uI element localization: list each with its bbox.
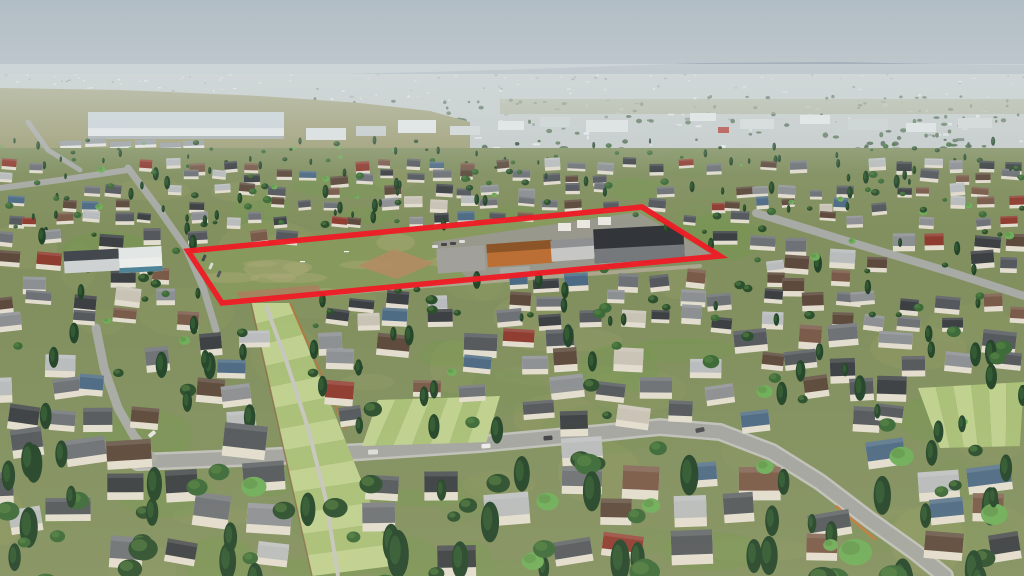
house (767, 272, 785, 287)
house (713, 231, 738, 245)
parked-car (459, 240, 465, 243)
school-building-main (593, 225, 685, 264)
school-building-wing (550, 237, 598, 261)
house (831, 270, 851, 287)
aerial-photo-canvas (0, 0, 1024, 576)
aerial-photo (0, 0, 1024, 576)
house (784, 254, 810, 274)
soccer-goal (300, 261, 305, 262)
house (0, 250, 20, 267)
house (36, 251, 62, 271)
house (143, 228, 160, 245)
house (686, 268, 707, 289)
house (893, 233, 915, 251)
house (0, 230, 14, 247)
parked-car (441, 243, 447, 246)
house (649, 274, 670, 293)
house (782, 278, 804, 297)
house (111, 271, 136, 288)
commercial-building (118, 246, 162, 273)
house (829, 249, 856, 270)
parked-car (450, 242, 456, 245)
house (785, 238, 806, 258)
house (1000, 257, 1017, 273)
house (750, 235, 776, 251)
commercial-building (63, 249, 119, 274)
parked-car (432, 245, 438, 248)
school-building-brick (486, 240, 553, 268)
soccer-goal (344, 251, 349, 252)
playground-gravel (436, 245, 486, 273)
house (924, 233, 944, 250)
